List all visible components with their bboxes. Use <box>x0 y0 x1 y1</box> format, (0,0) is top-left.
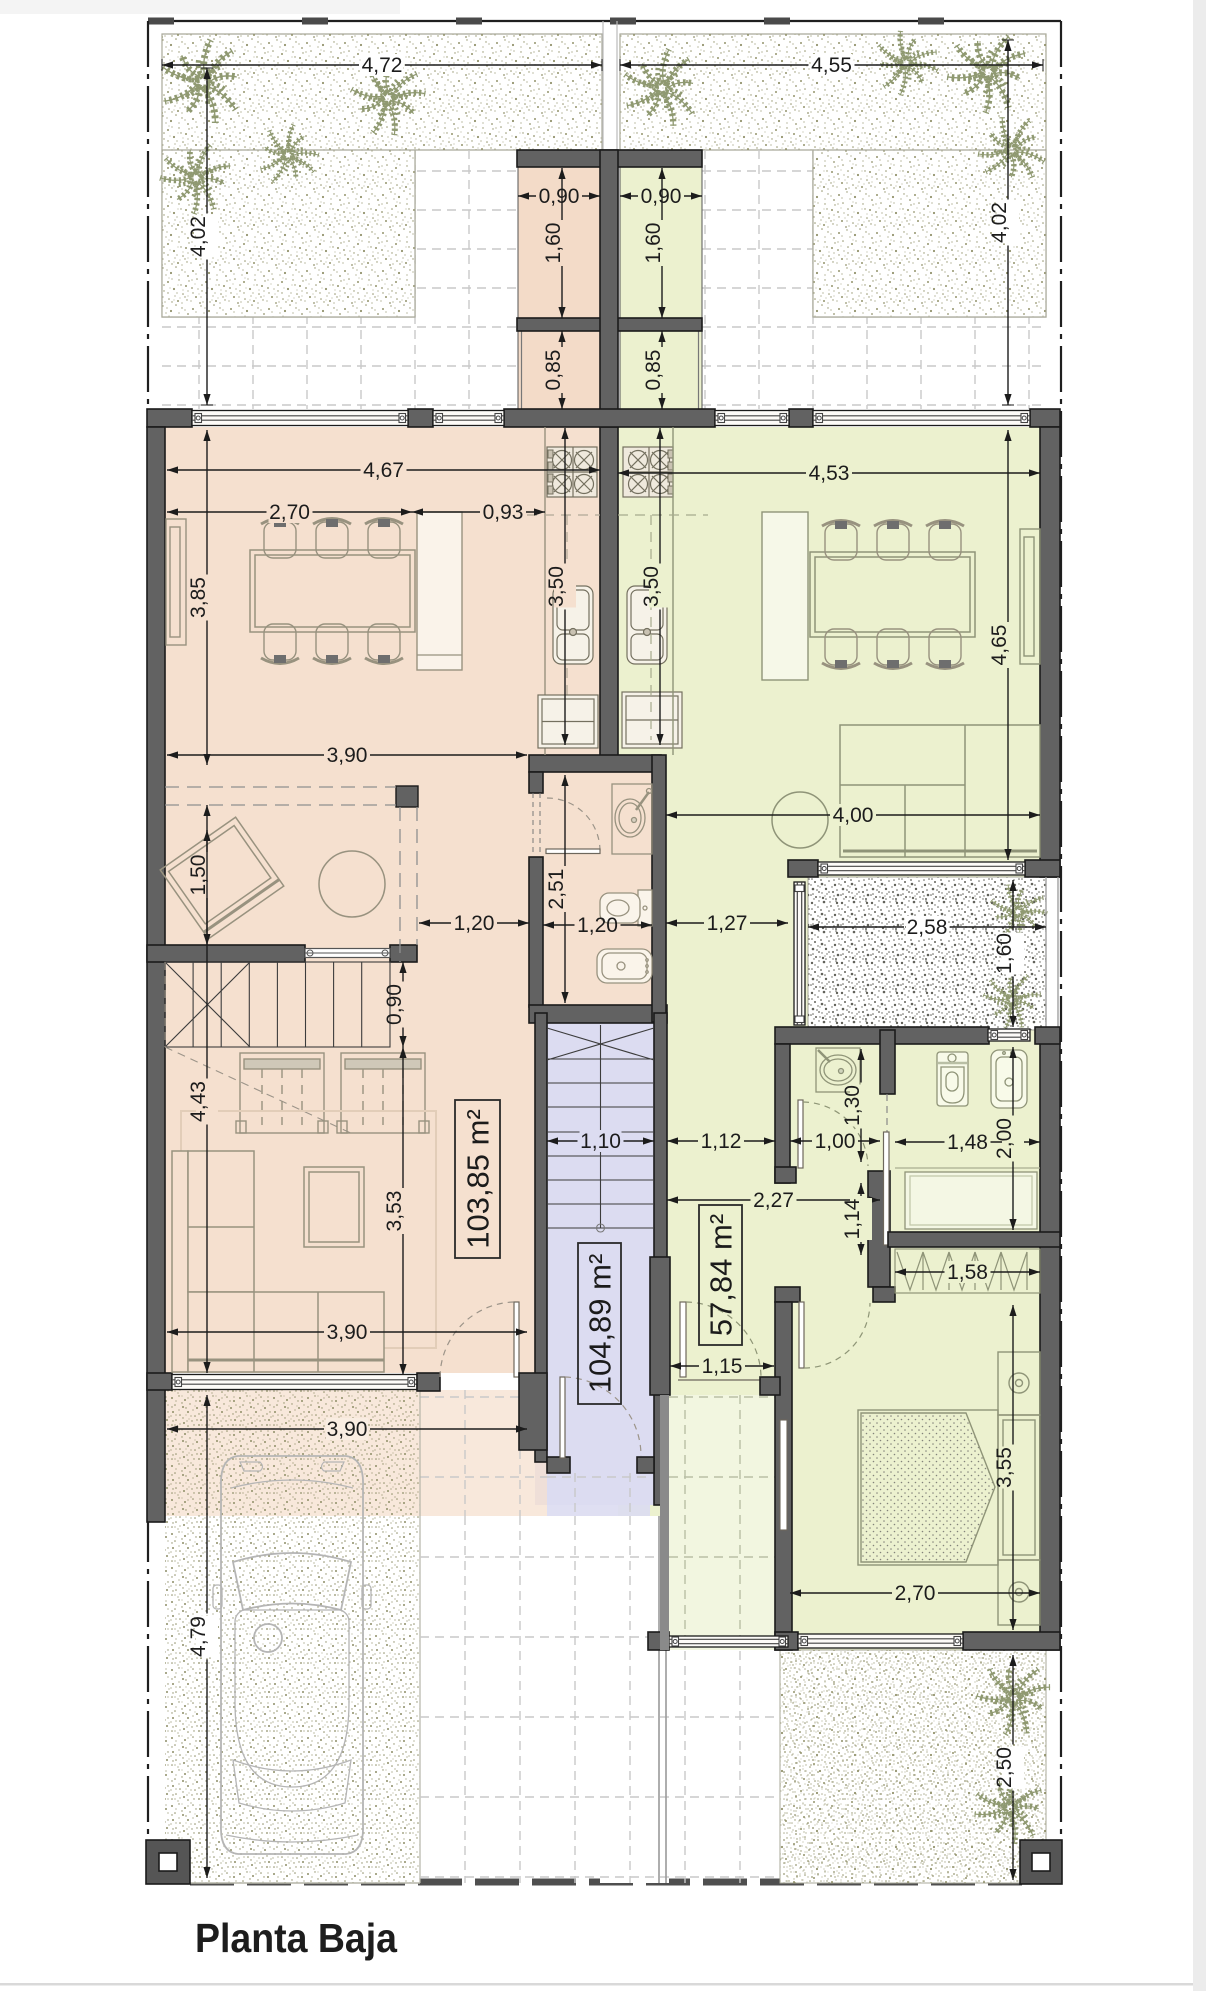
svg-text:2,58: 2,58 <box>907 916 948 939</box>
svg-text:3,85: 3,85 <box>187 577 210 618</box>
svg-text:4,02: 4,02 <box>187 216 210 257</box>
svg-text:4,79: 4,79 <box>187 1616 210 1657</box>
svg-text:3,90: 3,90 <box>327 1321 368 1344</box>
svg-text:2,51: 2,51 <box>545 869 568 910</box>
svg-text:3,90: 3,90 <box>327 744 368 767</box>
svg-text:1,10: 1,10 <box>580 1130 621 1153</box>
svg-text:57,84 m²: 57,84 m² <box>704 1214 739 1336</box>
svg-text:4,55: 4,55 <box>811 54 852 77</box>
svg-text:3,50: 3,50 <box>640 566 663 607</box>
svg-text:2,00: 2,00 <box>993 1118 1016 1159</box>
svg-text:1,58: 1,58 <box>947 1261 988 1284</box>
svg-text:0,93: 0,93 <box>483 501 524 524</box>
svg-text:2,27: 2,27 <box>753 1189 794 1212</box>
svg-text:1,20: 1,20 <box>454 912 495 935</box>
svg-text:1,00: 1,00 <box>815 1130 856 1153</box>
svg-text:4,65: 4,65 <box>988 625 1011 666</box>
svg-text:0,90: 0,90 <box>539 185 580 208</box>
svg-text:1,20: 1,20 <box>577 914 618 937</box>
svg-text:1,27: 1,27 <box>707 912 748 935</box>
svg-text:4,67: 4,67 <box>363 459 404 482</box>
svg-text:0,85: 0,85 <box>542 350 565 391</box>
svg-text:103,85 m²: 103,85 m² <box>461 1109 496 1249</box>
svg-text:1,60: 1,60 <box>542 223 565 264</box>
svg-text:1,48: 1,48 <box>947 1131 988 1154</box>
svg-text:4,53: 4,53 <box>809 462 850 485</box>
svg-text:3,55: 3,55 <box>993 1447 1016 1488</box>
svg-text:2,70: 2,70 <box>895 1582 936 1605</box>
svg-text:0,85: 0,85 <box>642 350 665 391</box>
svg-text:1,30: 1,30 <box>841 1085 864 1126</box>
svg-text:0,90: 0,90 <box>383 984 406 1025</box>
svg-text:1,14: 1,14 <box>841 1198 864 1239</box>
svg-text:104,89 m²: 104,89 m² <box>583 1254 618 1394</box>
svg-text:4,43: 4,43 <box>187 1081 210 1122</box>
svg-text:3,50: 3,50 <box>545 566 568 607</box>
svg-text:3,90: 3,90 <box>327 1418 368 1441</box>
svg-text:1,60: 1,60 <box>642 223 665 264</box>
svg-text:4,00: 4,00 <box>833 804 874 827</box>
svg-text:0,90: 0,90 <box>641 185 682 208</box>
svg-text:3,53: 3,53 <box>383 1191 406 1232</box>
svg-text:4,02: 4,02 <box>988 202 1011 243</box>
svg-text:2,70: 2,70 <box>269 501 310 524</box>
svg-text:1,12: 1,12 <box>701 1130 742 1153</box>
svg-text:4,72: 4,72 <box>362 54 403 77</box>
svg-text:1,15: 1,15 <box>702 1355 743 1378</box>
svg-text:Planta Baja: Planta Baja <box>195 1915 398 1961</box>
svg-text:2,50: 2,50 <box>993 1747 1016 1788</box>
svg-text:1,60: 1,60 <box>993 933 1016 974</box>
